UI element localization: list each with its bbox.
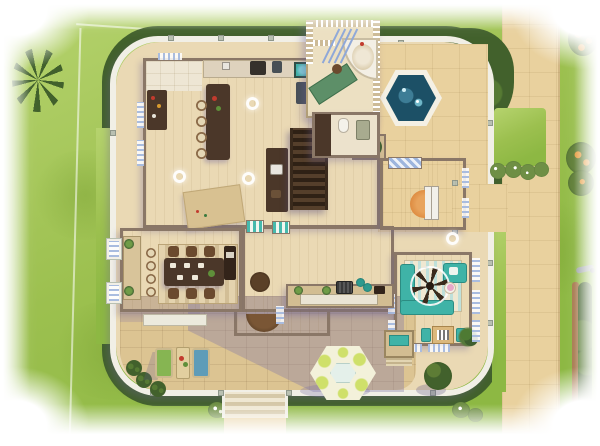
spa-tub-basin xyxy=(352,44,374,70)
stereo[interactable] xyxy=(374,286,385,294)
chess-chair[interactable] xyxy=(421,328,431,342)
counter-plant xyxy=(294,286,303,295)
lawn xyxy=(492,216,506,392)
bathroom-cabinet[interactable] xyxy=(315,114,331,156)
porch-steps xyxy=(386,358,412,366)
flowering-tree[interactable] xyxy=(568,22,598,56)
lawn-patch xyxy=(494,108,546,166)
deck-balustrade xyxy=(306,20,380,27)
bar-bottle xyxy=(151,96,155,100)
easel-canvas xyxy=(226,252,234,258)
deck-planter-pot xyxy=(332,64,342,74)
bar-shelf[interactable] xyxy=(147,90,167,130)
deck-balustrade xyxy=(306,20,313,64)
drink-keg[interactable] xyxy=(363,283,372,292)
place-setting xyxy=(177,275,183,280)
street-hedge xyxy=(578,282,592,416)
bar-bottle xyxy=(152,114,156,118)
rug-toy xyxy=(196,210,199,213)
living-window xyxy=(472,290,480,314)
place-setting xyxy=(198,263,204,268)
white-planter-bench[interactable] xyxy=(143,314,207,326)
bar-bottle xyxy=(157,104,161,108)
fence-post xyxy=(268,35,274,41)
flower-bush[interactable] xyxy=(534,162,549,177)
porch-mat xyxy=(389,335,409,346)
chess-board xyxy=(437,330,449,340)
ceiling-light xyxy=(446,232,459,245)
fence-post xyxy=(168,35,174,41)
table-flower xyxy=(183,362,188,367)
kitchen-island[interactable] xyxy=(206,84,230,160)
flower-bush[interactable] xyxy=(468,408,483,422)
striped-awning xyxy=(388,157,422,169)
potted-plant[interactable] xyxy=(124,239,134,249)
area-rug[interactable] xyxy=(183,184,246,230)
place-setting xyxy=(170,263,176,268)
entry-window xyxy=(462,198,469,218)
bar-stool[interactable] xyxy=(146,287,156,297)
bar-stool[interactable] xyxy=(196,148,207,159)
fence-post xyxy=(218,35,224,41)
ceiling-light xyxy=(246,97,259,110)
dining-chair[interactable] xyxy=(186,288,197,299)
bar-stool[interactable] xyxy=(196,100,207,111)
gate-post xyxy=(286,390,292,396)
bar-stool[interactable] xyxy=(146,274,156,284)
table-centerpiece xyxy=(208,270,215,277)
armchair-pillow xyxy=(449,267,458,275)
place-setting xyxy=(184,263,190,268)
island-decor xyxy=(212,96,217,101)
entry-window xyxy=(462,168,469,188)
outdoor-counter-sink[interactable] xyxy=(300,294,378,305)
entry-steps[interactable] xyxy=(222,392,288,418)
back-counter[interactable] xyxy=(266,148,288,212)
palm-tree xyxy=(12,48,64,112)
dining-chair[interactable] xyxy=(204,288,215,299)
sidewalk-edge xyxy=(558,0,560,446)
ceiling-light xyxy=(173,170,186,183)
bar-stool[interactable] xyxy=(146,248,156,258)
bar-stool[interactable] xyxy=(146,261,156,271)
street-lamp-head xyxy=(590,268,595,273)
dining-chair[interactable] xyxy=(186,246,197,257)
potted-plant[interactable] xyxy=(124,286,134,296)
living-window xyxy=(472,320,480,342)
flowering-tree[interactable] xyxy=(568,170,594,196)
closet-door-split xyxy=(431,186,432,220)
spa-control xyxy=(360,42,364,46)
kitchen-tile-floor xyxy=(146,61,202,91)
green-lounger[interactable] xyxy=(155,348,173,378)
dining-chair[interactable] xyxy=(204,246,215,257)
toilet[interactable] xyxy=(338,118,349,133)
bar-stool[interactable] xyxy=(196,116,207,127)
pond-sparkle xyxy=(402,88,406,92)
round-shrub[interactable] xyxy=(424,362,452,390)
pond-sparkle xyxy=(416,100,419,103)
counter-item xyxy=(271,190,281,198)
island-decor xyxy=(216,106,221,111)
stove[interactable] xyxy=(250,61,266,75)
window-awning xyxy=(272,221,290,234)
flower-bush[interactable] xyxy=(490,163,506,179)
living-window xyxy=(472,258,480,282)
bbq-grill[interactable] xyxy=(336,281,353,294)
blue-lounger[interactable] xyxy=(192,348,210,378)
round-rug[interactable] xyxy=(250,272,270,292)
window-shutter xyxy=(137,140,144,166)
rug-toy xyxy=(204,214,207,217)
bar-stool[interactable] xyxy=(196,132,207,143)
dishwasher[interactable] xyxy=(272,61,282,73)
window-shutter xyxy=(137,102,144,128)
bay-window-glass xyxy=(109,241,119,257)
flower-vase[interactable] xyxy=(447,284,454,291)
corner-hedge-bush xyxy=(150,381,166,397)
window-shutter xyxy=(276,306,284,324)
gate-post xyxy=(218,390,224,396)
counter-plant xyxy=(322,286,331,295)
game-viewport xyxy=(0,0,600,446)
window-shutter xyxy=(158,53,182,60)
window-awning xyxy=(246,220,264,233)
dining-chair[interactable] xyxy=(168,246,179,257)
living-window xyxy=(428,344,450,352)
place-setting xyxy=(192,275,198,280)
dining-chair[interactable] xyxy=(168,288,179,299)
washer[interactable] xyxy=(356,120,370,140)
ceiling-fan-hub xyxy=(426,282,434,290)
table-flower xyxy=(179,356,184,361)
kitchen-sink[interactable] xyxy=(270,164,283,175)
front-path xyxy=(224,418,286,446)
ceiling-light xyxy=(242,172,255,185)
small-appliance[interactable] xyxy=(222,62,230,70)
bay-window-glass xyxy=(109,285,119,301)
